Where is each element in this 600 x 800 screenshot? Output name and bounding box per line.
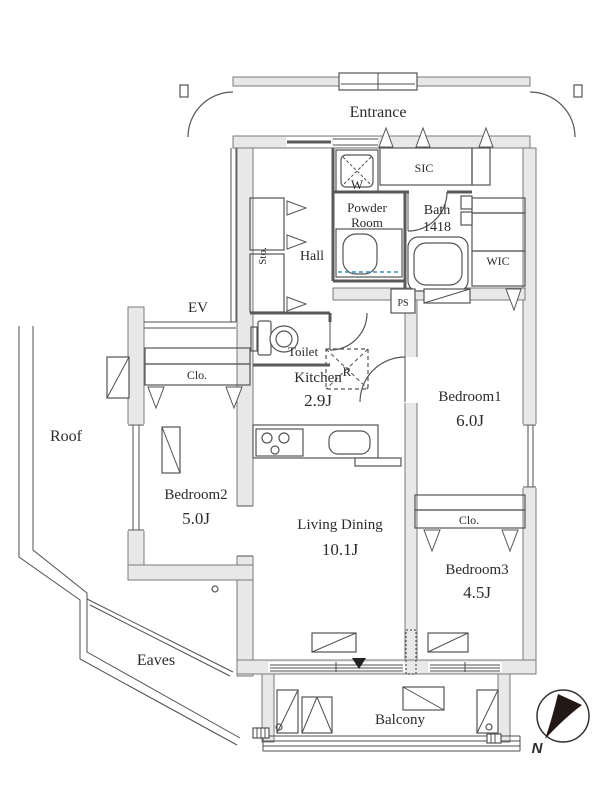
- wic-shelf: [472, 198, 525, 213]
- closet-b2-top: [145, 348, 250, 364]
- closet-b2-door-mark-1: [148, 387, 164, 408]
- roof-label: Roof: [50, 428, 83, 445]
- counter-step: [355, 458, 401, 466]
- bedroom1-label: Bedroom1: [438, 389, 501, 405]
- sto-door-mark-2: [287, 235, 306, 249]
- balcony-label: Balcony: [375, 712, 425, 728]
- bedroom1-window: [522, 424, 537, 488]
- bedroom1-area-label: 6.0J: [456, 411, 484, 430]
- bath-shelf-2: [461, 212, 472, 225]
- fridge-label: R: [343, 364, 352, 379]
- right-door-jamb: [574, 85, 582, 97]
- bath-size-label: 1418: [423, 220, 451, 235]
- closet-b13-door-mark-1: [424, 530, 440, 551]
- bedroom1-door-arc: [360, 357, 405, 402]
- powder-vanity: [336, 229, 402, 277]
- living-dining-area-label: 10.1J: [322, 540, 359, 559]
- drain-grate-left: [253, 728, 269, 738]
- balcony-unit-right: [477, 690, 498, 733]
- floor-plan: N Entrance EV Roof Eaves Balcony Hall Po…: [0, 0, 600, 800]
- bedroom3-area-label: 4.5J: [463, 583, 491, 602]
- ps-label: PS: [397, 298, 408, 309]
- eaves-label: Eaves: [137, 652, 175, 669]
- left-door-jamb: [180, 85, 188, 97]
- bedroom1-door-opening: [404, 357, 418, 403]
- bedroom2-area-label: 5.0J: [182, 509, 210, 528]
- closet-b13-top: [415, 495, 525, 510]
- balcony-tent-unit: [302, 697, 332, 733]
- closet-b13-door-mark-2: [502, 530, 518, 551]
- wall-pin: [212, 586, 218, 592]
- toilet-tank: [258, 321, 271, 355]
- balcony-unit-center: [403, 687, 444, 710]
- toilet-label: Toilet: [288, 344, 319, 359]
- sic-label: SIC: [415, 161, 434, 175]
- balcony-railing: [263, 736, 520, 751]
- hall-label: Hall: [300, 249, 324, 264]
- closet-b13-label: Clo.: [459, 513, 479, 527]
- kitchen-area-label: 2.9J: [304, 391, 332, 410]
- bedroom3-ac-unit: [428, 633, 468, 652]
- closet-b2-label: Clo.: [187, 368, 207, 382]
- balcony-unit-left: [277, 690, 298, 733]
- entrance-door-arc-left: [188, 92, 233, 137]
- washer-label: W: [351, 177, 364, 192]
- roof-column: [107, 357, 129, 398]
- living-ac-unit: [312, 633, 356, 652]
- sic-closet-2: [472, 148, 490, 185]
- wic-label: WIC: [486, 254, 509, 268]
- compass: N: [532, 690, 589, 757]
- bedroom2-label: Bedroom2: [164, 487, 227, 503]
- wic-upper: [472, 213, 525, 251]
- powder-room-label-2: Room: [351, 215, 383, 230]
- kitchen-counter: [253, 425, 401, 466]
- bedroom3-label: Bedroom3: [445, 562, 508, 578]
- storage-upper: [250, 198, 284, 250]
- powder-room-label-1: Powder: [347, 200, 387, 215]
- storage-label: Sto.: [257, 247, 269, 265]
- entrance-door-arc-right: [530, 92, 575, 137]
- sto-door-mark-1: [287, 201, 306, 215]
- bath-label: Bath: [424, 203, 450, 218]
- bedroom2-window: [127, 424, 145, 531]
- kitchen-door-arc: [330, 313, 367, 350]
- compass-north-label: N: [532, 740, 544, 757]
- floor-plan-page: N Entrance EV Roof Eaves Balcony Hall Po…: [0, 0, 600, 800]
- kitchen-label: Kitchen: [294, 370, 342, 386]
- sto-door-mark-3: [287, 297, 306, 311]
- living-dining-label: Living Dining: [297, 517, 383, 533]
- drain-grate-right: [487, 734, 501, 743]
- bath-shelf-1: [461, 196, 472, 209]
- bedroom2-door-opening: [236, 506, 254, 556]
- ev-label: EV: [188, 300, 208, 316]
- bedroom1-shelf: [424, 289, 470, 303]
- bedroom2-unit: [162, 427, 180, 473]
- entrance-label: Entrance: [350, 104, 407, 121]
